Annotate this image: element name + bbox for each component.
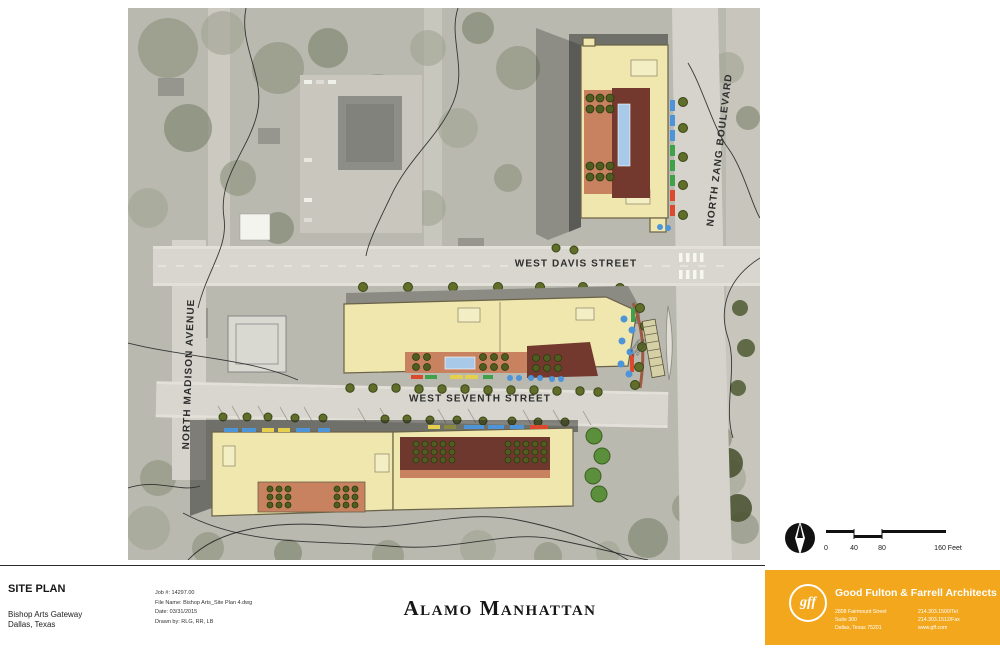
scale-bar-segments xyxy=(826,529,946,539)
drawing-sheet: WEST DAVIS STREET WEST SEVENTH STREET NO… xyxy=(0,0,1000,649)
sheet-type-label: SITE PLAN xyxy=(8,583,65,595)
gff-logo-text: gff xyxy=(800,595,816,611)
block-a-building xyxy=(536,28,688,240)
firm-tel: 214.303.1500/Tel xyxy=(918,608,960,616)
block-c-building xyxy=(190,420,610,516)
scale-tick-0: 0 xyxy=(824,545,828,552)
site-plan-graphics xyxy=(128,8,760,560)
street-label-west-davis: WEST DAVIS STREET xyxy=(515,259,637,270)
scale-tick-80: 80 xyxy=(878,545,886,552)
job-number: Job #: 14297.00 xyxy=(155,589,252,599)
north-arrow-icon xyxy=(785,521,815,555)
street-label-west-seventh: WEST SEVENTH STREET xyxy=(409,394,551,405)
date: Date: 03/31/2015 xyxy=(155,608,252,618)
project-name: Bishop Arts Gateway Dallas, Texas xyxy=(8,610,82,630)
scale-tick-40: 40 xyxy=(850,545,858,552)
firm-address-line3: Dallas, Texas 75201 xyxy=(835,624,887,632)
firm-name: Good Fulton & Farrell Architects xyxy=(835,587,997,599)
drawn-by: Drawn by: RLG, RR, LB xyxy=(155,618,252,628)
job-info-block: Job #: 14297.00 File Name: Bishop Arts_S… xyxy=(155,589,252,627)
firm-address-line2: Suite 300 xyxy=(835,616,887,624)
project-name-line: Bishop Arts Gateway xyxy=(8,610,82,620)
firm-fax: 214.303.1512/Fax xyxy=(918,616,960,624)
project-location-line: Dallas, Texas xyxy=(8,620,82,630)
file-name: File Name: Bishop Arts_Site Plan 4.dwg xyxy=(155,599,252,609)
scale-tick-160: 160 Feet xyxy=(934,545,962,552)
firm-contact: 214.303.1500/Tel 214.303.1512/Fax www.gf… xyxy=(918,608,960,632)
firm-address-line1: 2808 Fairmount Street xyxy=(835,608,887,616)
site-plan-map: WEST DAVIS STREET WEST SEVENTH STREET NO… xyxy=(128,8,760,560)
firm-address: 2808 Fairmount Street Suite 300 Dallas, … xyxy=(835,608,887,632)
project-title: Alamo Manhattan xyxy=(360,596,640,621)
gff-logo: gff xyxy=(789,584,827,622)
scale-bar: 0 40 80 160 Feet xyxy=(778,516,978,560)
titleblock-divider xyxy=(0,565,765,566)
firm-web: www.gff.com xyxy=(918,624,960,632)
architect-firm-block: gff Good Fulton & Farrell Architects 280… xyxy=(765,570,1000,645)
